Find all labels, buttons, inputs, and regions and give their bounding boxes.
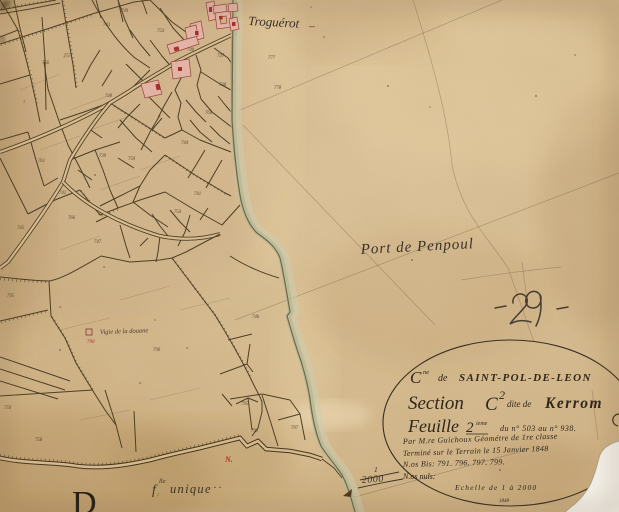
svg-text:dite de: dite de — [507, 399, 531, 409]
svg-text:739: 739 — [99, 154, 107, 159]
svg-text:795: 795 — [7, 294, 15, 299]
svg-text:756: 756 — [42, 61, 50, 66]
svg-text:Section: Section — [408, 393, 464, 414]
svg-text:a.: a. — [139, 380, 142, 385]
svg-text:SAINT-POL-DE-LEON: SAINT-POL-DE-LEON — [459, 372, 592, 384]
svg-text:745: 745 — [17, 226, 25, 231]
svg-text:C: C — [410, 368, 422, 387]
svg-text:778: 778 — [274, 86, 282, 91]
svg-text:Kerrom: Kerrom — [544, 395, 603, 412]
svg-text:Feuille: Feuille — [407, 416, 459, 436]
svg-text:747: 747 — [94, 240, 102, 245]
svg-text:790: 790 — [153, 348, 161, 353]
svg-text:764: 764 — [205, 111, 213, 116]
svg-text:757: 757 — [64, 54, 72, 59]
svg-text:1848: 1848 — [499, 499, 510, 504]
svg-text:793: 793 — [251, 429, 259, 434]
svg-text:743: 743 — [103, 23, 111, 28]
svg-text:761: 761 — [38, 159, 45, 164]
svg-text:de: de — [438, 373, 448, 384]
svg-text:758: 758 — [35, 438, 43, 443]
svg-text:unique: unique — [170, 482, 212, 496]
svg-text:Troguérot: Troguérot — [248, 13, 300, 31]
svg-text::: : — [157, 491, 159, 498]
svg-text:a.: a. — [59, 304, 62, 309]
svg-text:a.: a. — [103, 264, 106, 269]
svg-text:759: 759 — [128, 157, 136, 162]
svg-text:738: 738 — [219, 83, 227, 88]
svg-text:lle: lle — [159, 478, 166, 485]
svg-text:Echelle de 1 à 2000: Echelle de 1 à 2000 — [454, 483, 537, 492]
svg-text:740: 740 — [187, 48, 195, 53]
svg-text:749: 749 — [121, 9, 129, 14]
svg-text:766: 766 — [68, 216, 76, 221]
svg-text:746: 746 — [252, 315, 260, 320]
svg-text:. .: . . — [214, 480, 222, 491]
svg-text:1.: 1. — [23, 99, 26, 104]
svg-text:795: 795 — [241, 402, 249, 407]
svg-text:741: 741 — [194, 192, 201, 197]
svg-text:N.: N. — [224, 455, 233, 464]
svg-text:ne: ne — [423, 369, 429, 376]
svg-text:748: 748 — [105, 94, 113, 99]
svg-text:790: 790 — [87, 340, 95, 345]
svg-text:744: 744 — [181, 141, 189, 146]
svg-text:2000: 2000 — [361, 473, 384, 486]
svg-text:742: 742 — [59, 191, 67, 196]
svg-text:777: 777 — [268, 56, 276, 61]
svg-text:737: 737 — [217, 54, 225, 59]
svg-text:797: 797 — [291, 426, 299, 431]
svg-text:a.: a. — [186, 345, 189, 350]
svg-text:754: 754 — [157, 29, 165, 34]
svg-text:C: C — [485, 394, 498, 415]
svg-text:N.os nuls:: N.os nuls: — [402, 472, 436, 481]
svg-text:1: 1 — [374, 465, 378, 474]
svg-text:ieme: ieme — [476, 421, 488, 427]
svg-text:2: 2 — [499, 388, 505, 402]
svg-text:754: 754 — [174, 210, 182, 215]
